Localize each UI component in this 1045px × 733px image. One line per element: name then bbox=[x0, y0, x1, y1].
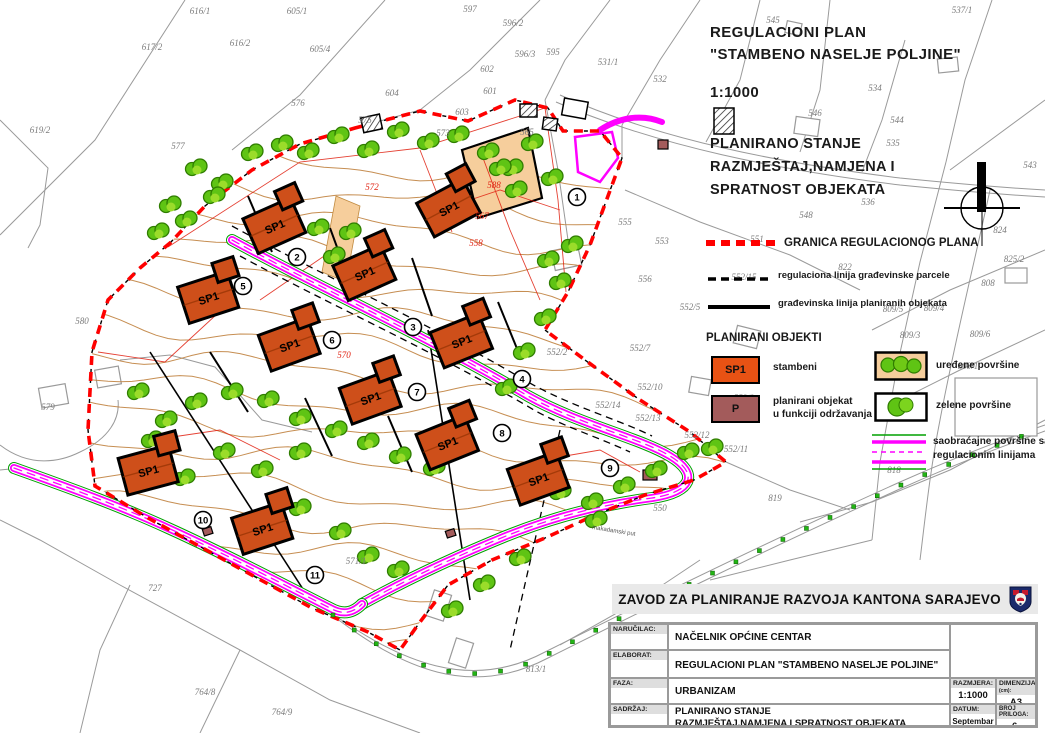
cadastral-parcel-label: 616/1 bbox=[190, 6, 211, 16]
cadastral-parcel-label: 553 bbox=[655, 236, 669, 246]
sadrzaj-value-line1: PLANIRANO STANJE bbox=[669, 705, 949, 717]
cadastral-parcel-label: 552/14 bbox=[595, 400, 621, 410]
plan-parcel-label: 588 bbox=[487, 180, 501, 190]
cadastral-parcel-label: 824 bbox=[993, 225, 1007, 235]
vegetation-tick-icon bbox=[547, 651, 551, 655]
sadrzaj-value-line2: RAZMJEŠTAJ,NAMJENA I SPRATNOST OBJEKATA bbox=[669, 717, 949, 725]
svg-text:7: 7 bbox=[414, 388, 419, 399]
parcel-number-marker: 1 bbox=[569, 189, 586, 206]
planned-road bbox=[14, 118, 688, 613]
vegetation-tick-icon bbox=[374, 642, 378, 646]
house-sp1: SP1 bbox=[412, 400, 488, 470]
tree-icon bbox=[242, 144, 264, 161]
vegetation-tick-icon bbox=[397, 654, 401, 658]
house-sp1: SP1 bbox=[254, 303, 329, 371]
parcel-number-marker: 11 bbox=[307, 567, 324, 584]
vegetation-tick-icon bbox=[499, 669, 503, 673]
vegetation-tick-icon bbox=[594, 628, 598, 632]
cadastral-parcel-label: 535 bbox=[886, 138, 900, 148]
narucilac-label: NARUČILAC: bbox=[611, 625, 667, 634]
road-name-label: makadamski put bbox=[592, 525, 636, 538]
cadastral-parcel-label: 543 bbox=[1023, 160, 1037, 170]
parcel-number-marker: 5 bbox=[235, 278, 252, 295]
faza-value: URBANIZAM bbox=[669, 679, 949, 700]
north-compass-icon bbox=[944, 162, 1020, 246]
vegetation-tick-icon bbox=[331, 613, 335, 617]
plan-title-line2: "STAMBENO NASELJE POLJINE" bbox=[710, 46, 961, 63]
cadastral-parcel-label: 552/11 bbox=[724, 444, 748, 454]
cadastral-parcel-label: 552/2 bbox=[547, 347, 568, 357]
svg-text:8: 8 bbox=[499, 429, 504, 440]
regulation-line-swatch-icon bbox=[706, 274, 772, 284]
house-sp1: SP1 bbox=[228, 488, 302, 555]
legend-p-swatch: P bbox=[711, 395, 760, 423]
vegetation-tick-icon bbox=[734, 560, 738, 564]
tree-icon bbox=[258, 391, 280, 408]
roads-swatch-icon bbox=[870, 430, 928, 474]
vegetation-tick-icon bbox=[352, 628, 356, 632]
tree-icon bbox=[448, 126, 470, 143]
tree-icon bbox=[290, 443, 312, 460]
cadastral-parcel-label: 552/10 bbox=[637, 382, 663, 392]
tree-icon bbox=[252, 461, 274, 478]
hatched-buildings bbox=[361, 98, 734, 134]
vegetation-tick-icon bbox=[781, 537, 785, 541]
parcel-number-marker: 7 bbox=[409, 384, 426, 401]
plan-subtitle-line2: RAZMJEŠTAJ,NAMJENA I bbox=[710, 159, 895, 175]
cadastral-parcel-label: 596/2 bbox=[503, 18, 524, 28]
vegetation-tick-icon bbox=[804, 526, 808, 530]
cadastral-parcel-label: 597 bbox=[463, 4, 477, 14]
cadastral-parcel-label: 565 bbox=[520, 127, 534, 137]
tree-icon bbox=[358, 141, 380, 158]
legend-sp1-label: stambeni bbox=[773, 362, 817, 373]
razmjera-value: 1:1000 bbox=[951, 688, 995, 701]
cadastral-parcel-label: 808 bbox=[981, 278, 995, 288]
plan-subtitle-line3: SPRATNOST OBJEKATA bbox=[710, 182, 885, 198]
tree-icon bbox=[156, 411, 178, 428]
plan-title-line1: REGULACIONI PLAN bbox=[710, 24, 866, 41]
tree-icon bbox=[222, 383, 244, 400]
cadastral-parcel-label: 573 bbox=[436, 128, 450, 138]
cadastral-parcel-label: 536 bbox=[861, 197, 875, 207]
plan-scale: 1:1000 bbox=[710, 84, 759, 101]
cadastral-parcel-label: 617/2 bbox=[142, 42, 163, 52]
vegetation-tick-icon bbox=[422, 663, 426, 667]
cadastral-parcel-label: 602 bbox=[480, 64, 494, 74]
tree-icon bbox=[176, 211, 198, 228]
vegetation-tick-icon bbox=[617, 617, 621, 621]
vegetation-tick-icon bbox=[447, 669, 451, 673]
legend-roads-label-line1: saobraćajne površine sa bbox=[933, 436, 1045, 447]
svg-text:5: 5 bbox=[240, 282, 246, 293]
plan-parcel-label: 558 bbox=[469, 238, 483, 248]
house-sp1: SP1 bbox=[426, 298, 502, 368]
tree-icon bbox=[148, 223, 170, 240]
cadastral-parcel-label: 531/1 bbox=[598, 57, 619, 67]
canton-sarajevo-coat-of-arms-icon bbox=[1009, 586, 1032, 613]
cadastral-parcel-label: 550 bbox=[653, 503, 667, 513]
cadastral-parcel-label: 619/2 bbox=[30, 125, 51, 135]
vegetation-tick-icon bbox=[899, 483, 903, 487]
cadastral-parcel-label: 596/3 bbox=[515, 49, 536, 59]
cadastral-parcel-label: 577 bbox=[171, 141, 185, 151]
cadastral-parcel-label: 546 bbox=[808, 108, 822, 118]
faza-label: FAZA: bbox=[611, 679, 667, 688]
broj-priloga-label: BROJ PRILOGA: bbox=[997, 705, 1035, 719]
tree-icon bbox=[535, 309, 557, 326]
cadastral-parcel-label: 601 bbox=[483, 86, 497, 96]
sadrzaj-label: SADRŽAJ: bbox=[611, 705, 667, 714]
cadastral-parcel-label: 555 bbox=[618, 217, 632, 227]
cadastral-parcel-label: 552/12 bbox=[684, 430, 710, 440]
tree-icon bbox=[678, 443, 700, 460]
vegetation-tick-icon bbox=[947, 462, 951, 466]
empty-cell bbox=[951, 625, 1035, 679]
cadastral-parcel-label: 579 bbox=[41, 402, 55, 412]
elaborat-value: REGULACIONI PLAN "STAMBENO NASELJE POLJI… bbox=[669, 651, 949, 674]
cadastral-parcel-label: 727 bbox=[148, 583, 162, 593]
parcel-number-marker: 6 bbox=[324, 332, 341, 349]
tree-icon bbox=[474, 575, 496, 592]
svg-text:2: 2 bbox=[294, 253, 299, 264]
svg-text:10: 10 bbox=[198, 516, 209, 527]
cadastral-parcel-label: 548 bbox=[799, 210, 813, 220]
legend-p-label-line1: planirani objekat bbox=[773, 396, 852, 407]
legend-sp1-swatch: SP1 bbox=[711, 356, 760, 384]
tree-icon bbox=[204, 187, 226, 204]
cadastral-parcel-label: 571/1 bbox=[346, 556, 367, 566]
tree-icon bbox=[308, 219, 330, 236]
broj-priloga-value: 6. bbox=[997, 719, 1035, 725]
tree-icon bbox=[330, 523, 352, 540]
tree-icon bbox=[160, 196, 182, 213]
cadastral-buildings bbox=[38, 21, 1037, 668]
tree-icon bbox=[186, 159, 208, 176]
cadastral-parcel-label: 764/9 bbox=[272, 707, 293, 717]
cadastral-parcel-label: 809/3 bbox=[900, 330, 921, 340]
plan-parcel-label: 572 bbox=[365, 182, 379, 192]
legend-objects-header: PLANIRANI OBJEKTI bbox=[706, 332, 822, 344]
vegetation-tick-icon bbox=[570, 640, 574, 644]
cadastral-parcel-label: 616/2 bbox=[230, 38, 251, 48]
svg-text:4: 4 bbox=[519, 375, 525, 386]
vegetation-tick-icon bbox=[828, 515, 832, 519]
vegetation-tick-icon bbox=[875, 494, 879, 498]
tree-icon bbox=[562, 236, 584, 253]
cadastral-parcel-label: 552/5 bbox=[680, 302, 701, 312]
cadastral-parcel-label: 605/4 bbox=[310, 44, 331, 54]
green-surface-swatch-icon bbox=[874, 392, 928, 422]
tree-icon bbox=[290, 409, 312, 426]
legend-green-label: zelene površine bbox=[936, 400, 1011, 411]
org-title: ZAVOD ZA PLANIRANJE RAZVOJA KANTONA SARA… bbox=[618, 592, 1001, 607]
svg-text:1: 1 bbox=[574, 193, 580, 204]
tree-icon bbox=[614, 477, 636, 494]
svg-text:11: 11 bbox=[310, 571, 321, 582]
vegetation-tick-icon bbox=[473, 672, 477, 676]
legend-regline-label: regulaciona linija građevinske parcele bbox=[778, 270, 950, 281]
vegetation-tick-icon bbox=[852, 505, 856, 509]
tree-icon bbox=[388, 122, 410, 139]
dimenzija-unit: (cm): bbox=[999, 688, 1011, 694]
datum-value: Septembar 2020. bbox=[951, 714, 995, 725]
parcel-number-marker: 3 bbox=[405, 319, 422, 336]
cadastral-parcel-label: 603 bbox=[455, 107, 469, 117]
org-header-bar: ZAVOD ZA PLANIRANJE RAZVOJA KANTONA SARA… bbox=[612, 584, 1038, 614]
razmjera-label: RAZMJERA: bbox=[951, 679, 995, 688]
datum-label: DATUM: bbox=[951, 705, 995, 714]
tree-icon bbox=[550, 273, 572, 290]
cadastral-parcel-label: 764/8 bbox=[195, 687, 216, 697]
cadastral-parcel-label: 604 bbox=[385, 88, 399, 98]
tree-icon bbox=[328, 127, 350, 144]
plan-subtitle-line1: PLANIRANO STANJE bbox=[710, 136, 861, 152]
tree-icon bbox=[298, 143, 320, 160]
svg-text:3: 3 bbox=[410, 323, 415, 334]
tree-icon bbox=[186, 393, 208, 410]
cadastral-parcel-label: 605/1 bbox=[287, 6, 308, 16]
legend-p-label-line2: u funkciji održavanja bbox=[773, 409, 872, 420]
cadastral-parcel-label: 576 bbox=[291, 98, 305, 108]
parcel-number-marker: 9 bbox=[602, 460, 619, 477]
legend-arranged-label: uređene površine bbox=[936, 360, 1019, 371]
parcel-number-marker: 10 bbox=[195, 512, 212, 529]
building-line-swatch-icon bbox=[706, 302, 772, 312]
elaborat-label: ELABORAT: bbox=[611, 651, 667, 660]
cadastral-parcel-label: 544 bbox=[890, 115, 904, 125]
parcel-number-marker: 2 bbox=[289, 249, 306, 266]
title-block-table: NARUČILAC: NAČELNIK OPĆINE CENTAR ELABOR… bbox=[608, 622, 1038, 728]
cadastral-parcel-label: 532 bbox=[653, 74, 667, 84]
legend-buildline-label: građevinska linija planiranih objekata bbox=[778, 298, 947, 309]
dimenzija-value: A3 bbox=[997, 695, 1035, 705]
svg-text:9: 9 bbox=[607, 464, 612, 475]
vegetation-tick-icon bbox=[757, 549, 761, 553]
plan-sheet: SP1SP1SP1SP1SP1SP1SP1SP1SP1SP1SP1 123456… bbox=[0, 0, 1045, 733]
legend-roads-label-line2: regulacionim linijama bbox=[933, 450, 1035, 461]
legend-boundary-label: GRANICA REGULACIONOG PLANA bbox=[784, 237, 978, 249]
cadastral-parcel-label: 580 bbox=[75, 316, 89, 326]
cadastral-parcel-label: 825/2 bbox=[1004, 254, 1025, 264]
parcel-number-marker: 8 bbox=[494, 425, 511, 442]
vegetation-tick-icon bbox=[524, 662, 528, 666]
cadastral-parcel-label: 552/13 bbox=[635, 413, 661, 423]
boundary-line-swatch-icon bbox=[704, 238, 780, 248]
parcel-number-marker: 4 bbox=[514, 371, 531, 388]
vegetation-tick-icon bbox=[711, 571, 715, 575]
tree-icon bbox=[702, 439, 724, 456]
plan-parcel-label: 567 bbox=[475, 211, 489, 221]
cadastral-parcel-label: 575 bbox=[358, 115, 372, 125]
arranged-surface-swatch-icon bbox=[874, 351, 928, 381]
dimenzija-label: DIMENZIJA bbox=[999, 680, 1035, 687]
cadastral-parcel-label: 556 bbox=[638, 274, 652, 284]
tree-icon bbox=[326, 421, 348, 438]
road-stub-outline bbox=[575, 132, 618, 182]
tree-icon bbox=[358, 433, 380, 450]
cadastral-parcel-label: 819 bbox=[768, 493, 782, 503]
plan-parcel-label: 570 bbox=[337, 350, 351, 360]
cadastral-parcel-label: 534 bbox=[868, 83, 882, 93]
svg-text:6: 6 bbox=[329, 336, 334, 347]
tree-icon bbox=[128, 383, 150, 400]
cadastral-parcel-label: 537/1 bbox=[952, 5, 973, 15]
narucilac-value: NAČELNIK OPĆINE CENTAR bbox=[669, 625, 949, 646]
cadastral-parcel-label: 809/6 bbox=[970, 329, 991, 339]
cadastral-parcel-label: 552/7 bbox=[630, 343, 651, 353]
cadastral-parcel-label: 813/1 bbox=[526, 664, 547, 674]
cadastral-parcel-label: 595 bbox=[546, 47, 560, 57]
